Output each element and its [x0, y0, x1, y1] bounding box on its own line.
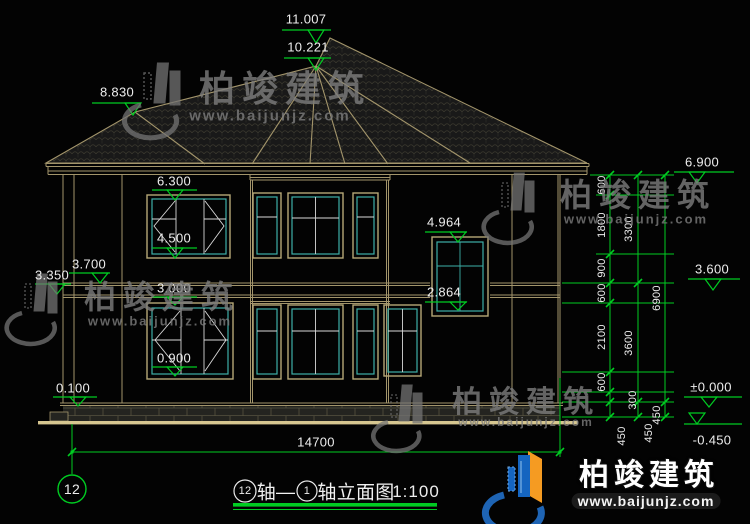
- brand-logo-name: 柏竣建筑: [579, 450, 719, 494]
- dim-middle-3600: 3600: [623, 330, 635, 356]
- eave-fascia: [46, 164, 589, 181]
- dim-middle-450: 450: [643, 423, 655, 442]
- dim-inner-300: 300: [627, 390, 639, 409]
- dim-inner-450: 450: [616, 426, 628, 445]
- elevation-label-ridge-second: 10.221: [287, 40, 329, 55]
- elevation-label-f2-window-sill: 4.500: [157, 231, 191, 246]
- watermark-brand-left: 柏竣建筑: [84, 272, 240, 318]
- elevation-label-f2-window-head: 6.300: [157, 174, 191, 189]
- elevation-label-left-band-top: 3.700: [72, 257, 106, 272]
- elevation-drawing-canvas: 11.007 10.221 8.830 6.300 4.500 3.700 3.…: [0, 0, 750, 524]
- title-name: 轴立面图: [317, 478, 394, 505]
- elevation-label-plinth-top: 0.100: [56, 381, 90, 396]
- dim-outer-450: 450: [651, 405, 663, 424]
- elevation-label-f2-level: 3.600: [695, 262, 729, 277]
- axis-bubble-label: 12: [64, 481, 80, 497]
- elevation-label-site-ground: -0.450: [693, 433, 732, 448]
- dim-inner-600b: 600: [596, 283, 608, 302]
- elevation-label-left-ridge: 8.830: [100, 85, 134, 100]
- watermark-url-bottom: www.baijunjz.com: [458, 415, 594, 429]
- title-dash: 轴—: [257, 478, 296, 505]
- title-end-axis: 1: [304, 485, 310, 497]
- watermark-brand-right: 柏竣建筑: [560, 170, 716, 216]
- elevation-label-ridge-top: 11.007: [286, 12, 327, 27]
- title-start-axis: 12: [239, 485, 252, 497]
- drawing-geometry: [0, 0, 750, 524]
- watermark-url-left: www.baijunjz.com: [88, 314, 232, 329]
- elevation-label-stair-window-head: 4.964: [427, 215, 461, 230]
- elevation-label-left-band-bottom: 3.350: [35, 268, 69, 283]
- elevation-label-ground-zero: ±0.000: [690, 380, 731, 395]
- elevation-label-f1-window-sill: 0.900: [157, 351, 191, 366]
- dim-inner-2100: 2100: [596, 324, 608, 350]
- overall-width-label: 14700: [297, 435, 335, 450]
- brand-logo-icon: [485, 451, 542, 524]
- watermark-brand-top: 柏竣建筑: [199, 60, 371, 112]
- title-scale: 1:100: [392, 482, 440, 502]
- dim-outer-6900: 6900: [651, 285, 663, 311]
- watermark-url-right: www.baijunjz.com: [564, 212, 708, 227]
- brand-logo-url: www.baijunjz.com: [572, 493, 721, 509]
- watermark-url-top: www.baijunjz.com: [189, 108, 350, 125]
- elevation-label-eave-right: 6.900: [685, 155, 719, 170]
- elevation-label-stair-window-sill: 2.864: [427, 285, 461, 300]
- dim-inner-900: 900: [596, 258, 608, 277]
